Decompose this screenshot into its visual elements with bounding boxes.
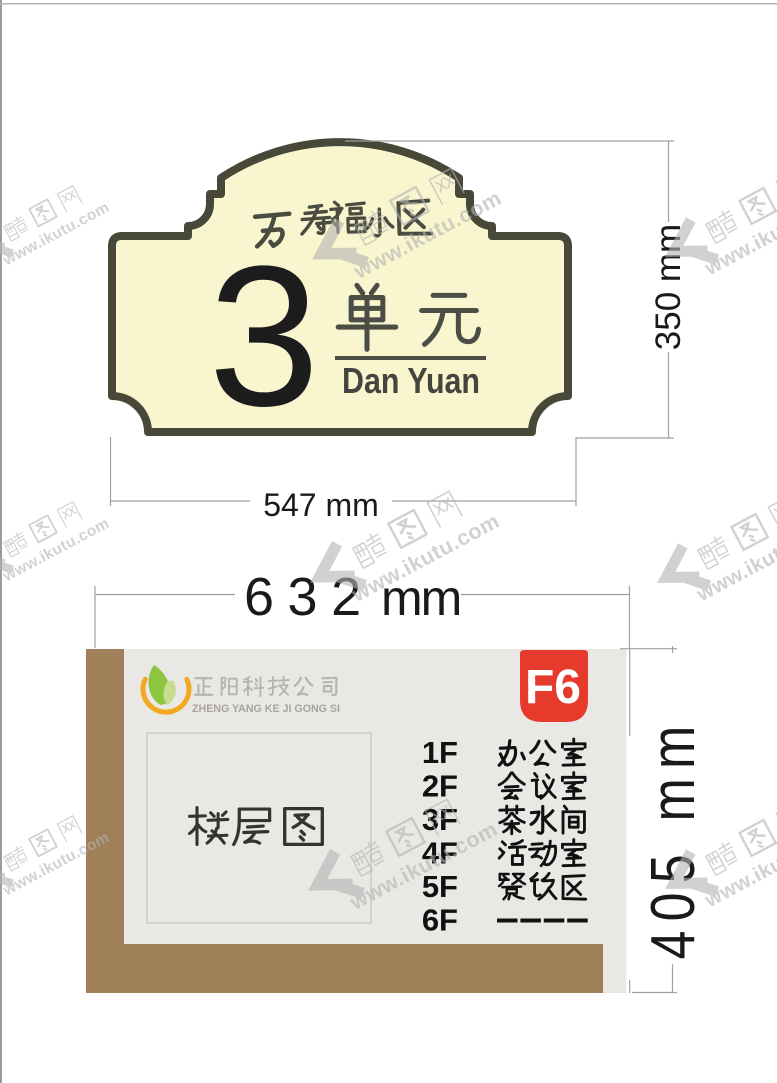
svg-text:www.ikutu.com: www.ikutu.com [0, 515, 112, 586]
svg-text:2F: 2F [422, 769, 458, 804]
svg-text:F6: F6 [525, 661, 581, 714]
svg-text:3: 3 [208, 225, 319, 448]
svg-text:ZHENG YANG KE JI GONG SI: ZHENG YANG KE JI GONG SI [192, 703, 340, 715]
svg-text:547 mm: 547 mm [263, 487, 379, 523]
svg-text:1F: 1F [422, 735, 458, 770]
svg-text:3F: 3F [422, 802, 458, 837]
svg-text:Dan Yuan: Dan Yuan [342, 360, 480, 401]
svg-text:405 mm: 405 mm [639, 717, 708, 960]
svg-text:www.ikutu.com: www.ikutu.com [0, 199, 112, 270]
svg-text:6F: 6F [422, 903, 458, 938]
svg-text:www.ikutu.com: www.ikutu.com [693, 514, 777, 607]
